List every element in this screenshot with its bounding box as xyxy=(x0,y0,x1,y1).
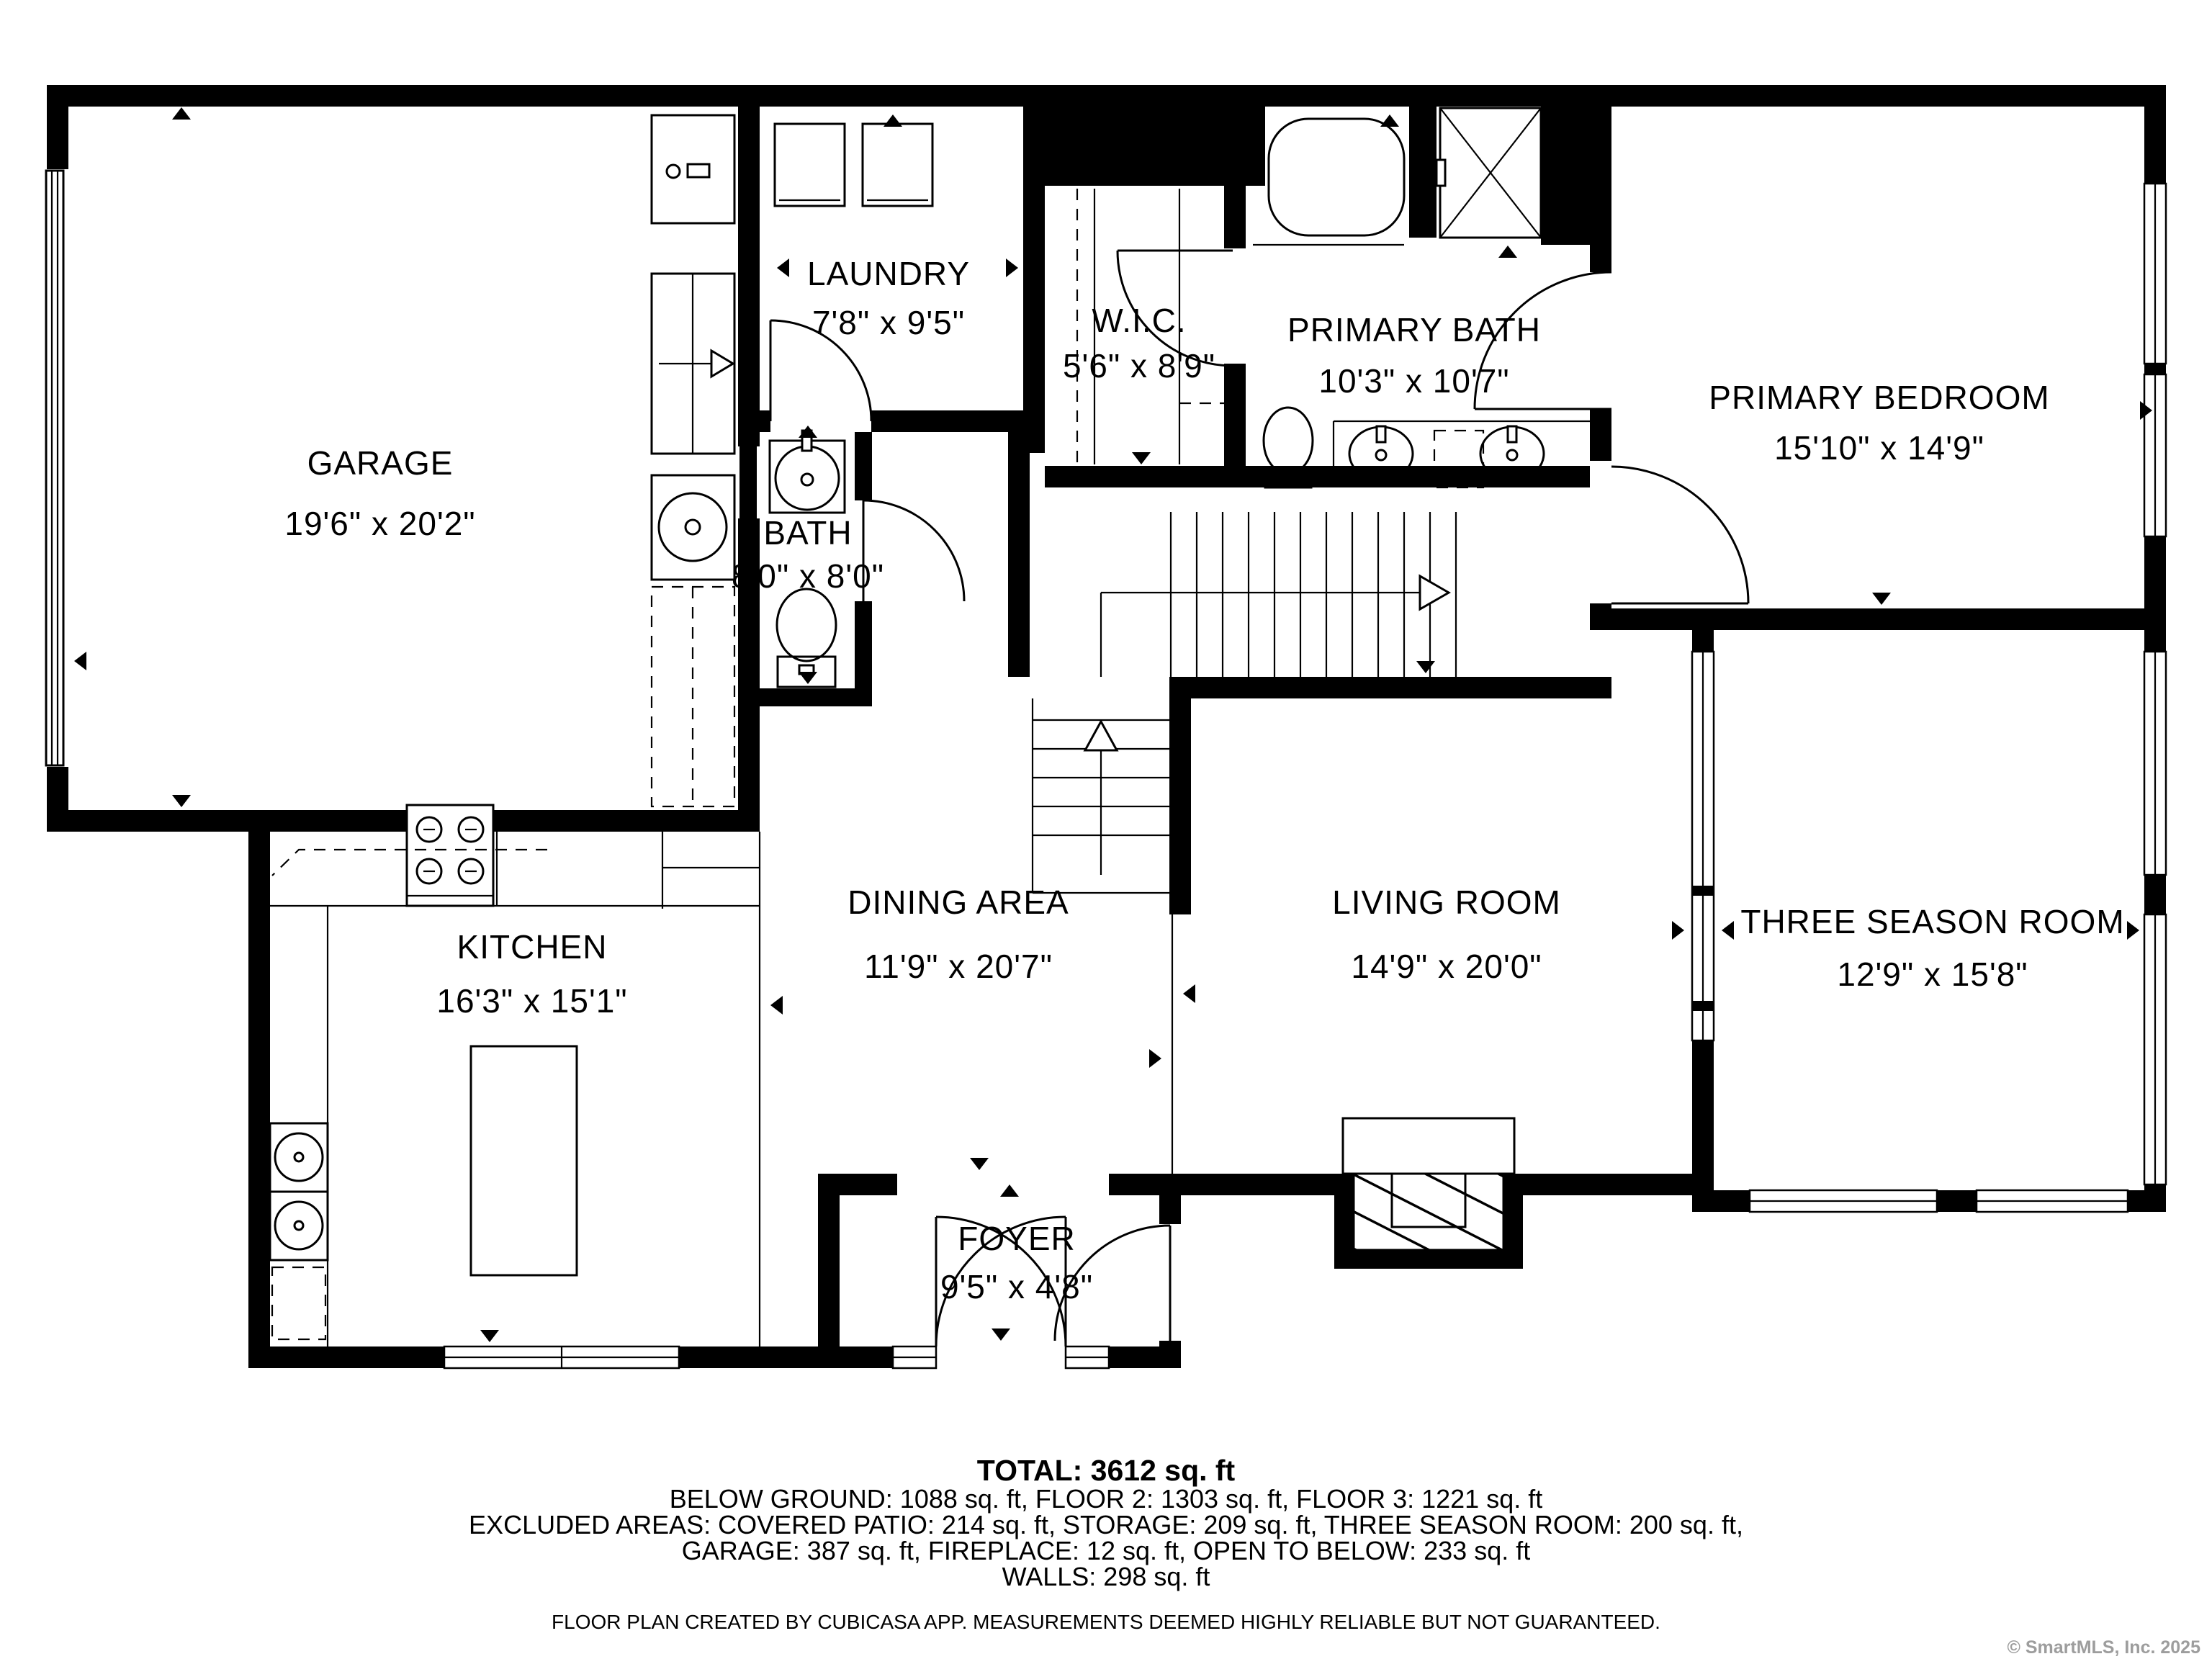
room-labels: GARAGE 19'6" x 20'2" LAUNDRY 7'8" x 9'5"… xyxy=(284,255,2124,1305)
kitchen-counters xyxy=(270,832,760,1346)
fireplace-icon xyxy=(1334,1118,1523,1269)
floors-area-text: BELOW GROUND: 1088 sq. ft, FLOOR 2: 1303… xyxy=(670,1484,1542,1514)
foyer-dims: 9'5" x 4'8" xyxy=(940,1268,1093,1305)
bath-label: BATH xyxy=(763,514,852,552)
window-kitchen xyxy=(444,1346,679,1368)
living-dims: 14'9" x 20'0" xyxy=(1351,948,1542,985)
opening-markers xyxy=(74,107,2152,1342)
window-three-season-left xyxy=(1692,652,1714,1040)
three-season-label: THREE SEASON ROOM xyxy=(1740,903,2124,940)
dryer-icon xyxy=(863,124,932,206)
three-season-dims: 12'9" x 15'8" xyxy=(1837,956,2028,993)
walls-overlay xyxy=(739,410,757,706)
garage-steps xyxy=(652,274,734,454)
garage-door-icon xyxy=(46,171,63,765)
kitchen-sink-icon xyxy=(270,1123,328,1260)
garage-utility-dashed xyxy=(652,587,734,806)
window-three-season-right xyxy=(2144,652,2166,1184)
stairs-up xyxy=(1101,512,1456,677)
window-foyer-sidelight-right xyxy=(1066,1346,1109,1368)
kitchen-dims: 16'3" x 15'1" xyxy=(436,982,627,1020)
primary-bath-label: PRIMARY BATH xyxy=(1287,311,1541,349)
range-icon xyxy=(407,805,493,906)
bedroom-door-icon xyxy=(1611,467,1748,603)
primary-bath-dims: 10'3" x 10'7" xyxy=(1318,362,1509,400)
bath-sink-icon xyxy=(770,431,845,513)
water-heater-icon xyxy=(652,475,734,580)
living-label: LIVING ROOM xyxy=(1332,884,1561,921)
stairs-down xyxy=(1033,698,1169,893)
excluded-areas-text: EXCLUDED AREAS: COVERED PATIO: 214 sq. f… xyxy=(469,1510,1743,1539)
walls xyxy=(47,85,2166,1368)
copyright-text: © SmartMLS, Inc. 2025 xyxy=(2007,1637,2200,1658)
dining-label: DINING AREA xyxy=(848,884,1069,921)
washer-icon xyxy=(775,124,845,206)
total-area-text: TOTAL: 3612 sq. ft xyxy=(977,1454,1236,1487)
window-bedroom-right xyxy=(2144,184,2166,536)
kitchen-island xyxy=(471,1046,577,1275)
wic-label: W.I.C. xyxy=(1092,302,1186,339)
wic-dims: 5'6" x 8'9" xyxy=(1063,347,1215,385)
foyer-label: FOYER xyxy=(958,1220,1075,1257)
laundry-label: LAUNDRY xyxy=(807,255,970,292)
garage-fireplace-text: GARAGE: 387 sq. ft, FIREPLACE: 12 sq. ft… xyxy=(682,1536,1530,1565)
floor-plan-page: GARAGE 19'6" x 20'2" LAUNDRY 7'8" x 9'5"… xyxy=(0,0,2212,1659)
kitchen-label: KITCHEN xyxy=(457,928,608,966)
window-foyer-sidelight-left xyxy=(893,1346,936,1368)
garage-label: GARAGE xyxy=(307,444,454,482)
kitchen-pantry-dashed xyxy=(272,1267,325,1339)
primary-bedroom-dims: 15'10" x 14'9" xyxy=(1774,429,1984,467)
floor-plan-canvas: GARAGE 19'6" x 20'2" LAUNDRY 7'8" x 9'5"… xyxy=(0,0,2212,1659)
dining-dims: 11'9" x 20'7" xyxy=(864,948,1053,985)
footer-summary: TOTAL: 3612 sq. ft BELOW GROUND: 1088 sq… xyxy=(469,1454,1743,1633)
bathtub-icon xyxy=(1253,119,1404,245)
primary-bedroom-label: PRIMARY BEDROOM xyxy=(1709,379,2049,416)
garage-dims: 19'6" x 20'2" xyxy=(284,505,475,542)
laundry-dims: 7'8" x 9'5" xyxy=(812,304,965,341)
disclaimer-text: FLOOR PLAN CREATED BY CUBICASA APP. MEAS… xyxy=(552,1611,1660,1633)
walls-area-text: WALLS: 298 sq. ft xyxy=(1002,1562,1210,1591)
shower-icon xyxy=(1437,108,1541,238)
fixtures xyxy=(270,108,1590,1346)
garage-cabinet xyxy=(652,115,734,223)
